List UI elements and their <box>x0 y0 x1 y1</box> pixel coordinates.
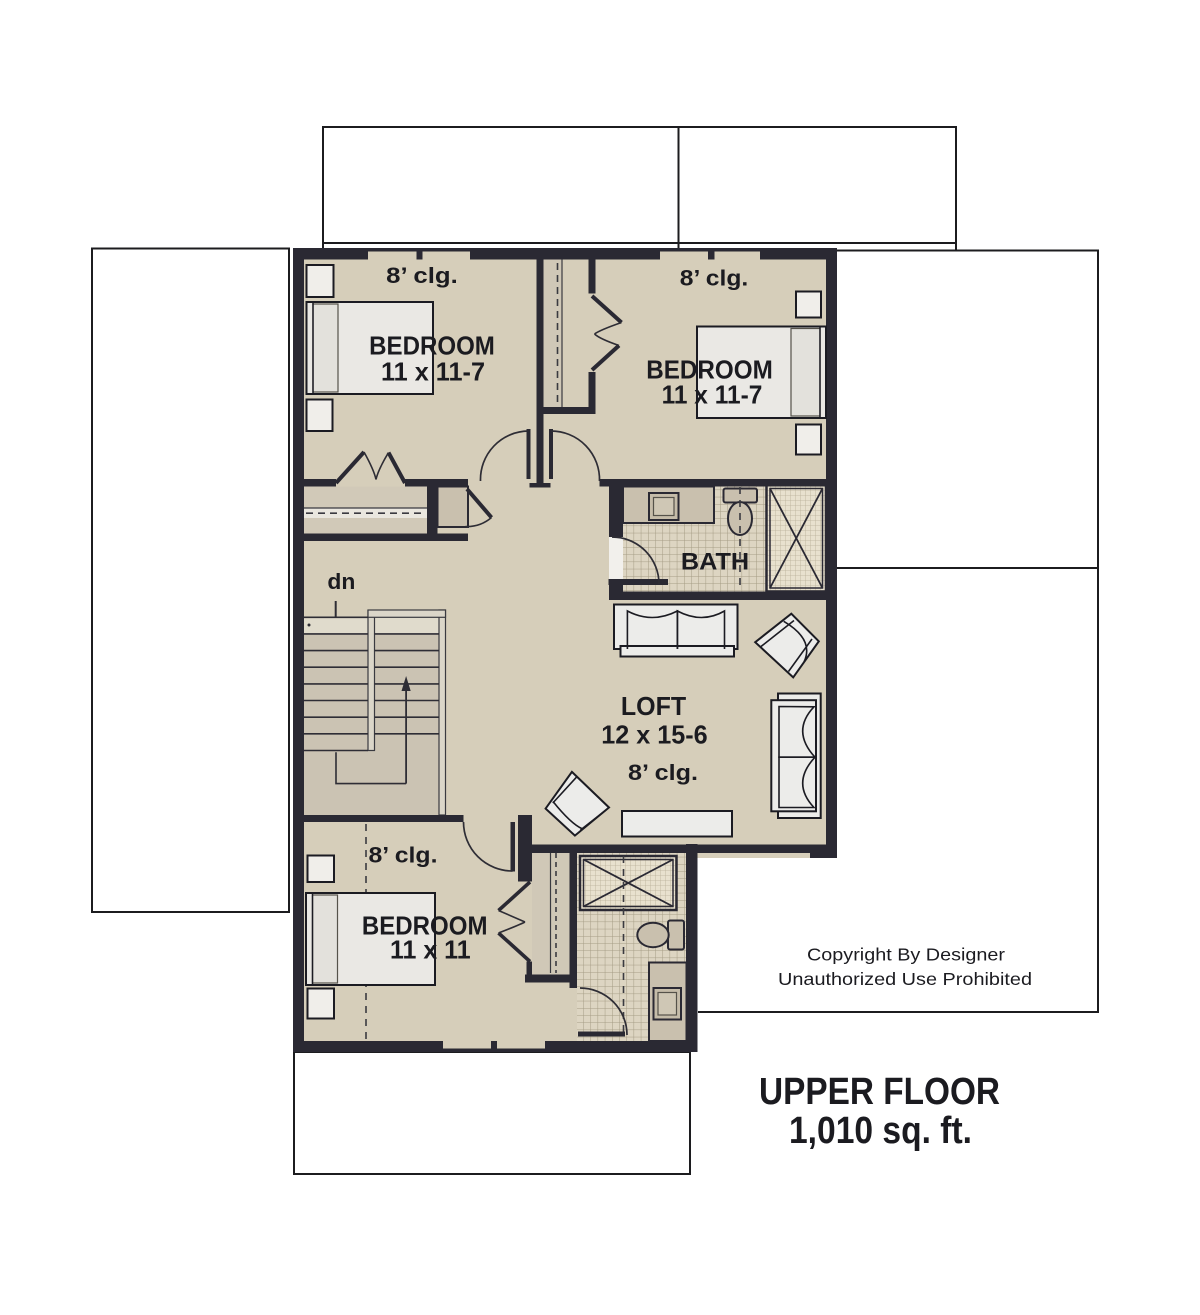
svg-text:dn: dn <box>327 569 355 594</box>
svg-text:8’ clg.: 8’ clg. <box>680 266 749 291</box>
svg-text:LOFT: LOFT <box>621 691 686 721</box>
svg-text:Unauthorized Use Prohibited: Unauthorized Use Prohibited <box>778 969 1032 989</box>
svg-text:11 x 11-7: 11 x 11-7 <box>662 380 763 410</box>
svg-text:8’ clg.: 8’ clg. <box>628 760 698 785</box>
svg-text:11 x 11: 11 x 11 <box>390 935 471 965</box>
svg-text:12 x 15-6: 12 x 15-6 <box>601 720 707 750</box>
svg-text:Copyright By Designer: Copyright By Designer <box>807 945 1005 965</box>
svg-text:8’ clg.: 8’ clg. <box>369 843 438 868</box>
svg-text:11 x 11-7: 11 x 11-7 <box>381 357 485 387</box>
svg-text:UPPER FLOOR: UPPER FLOOR <box>759 1071 1000 1113</box>
svg-text:BATH: BATH <box>681 549 749 576</box>
svg-text:1,010 sq. ft.: 1,010 sq. ft. <box>789 1110 972 1152</box>
svg-text:8’ clg.: 8’ clg. <box>386 263 458 288</box>
